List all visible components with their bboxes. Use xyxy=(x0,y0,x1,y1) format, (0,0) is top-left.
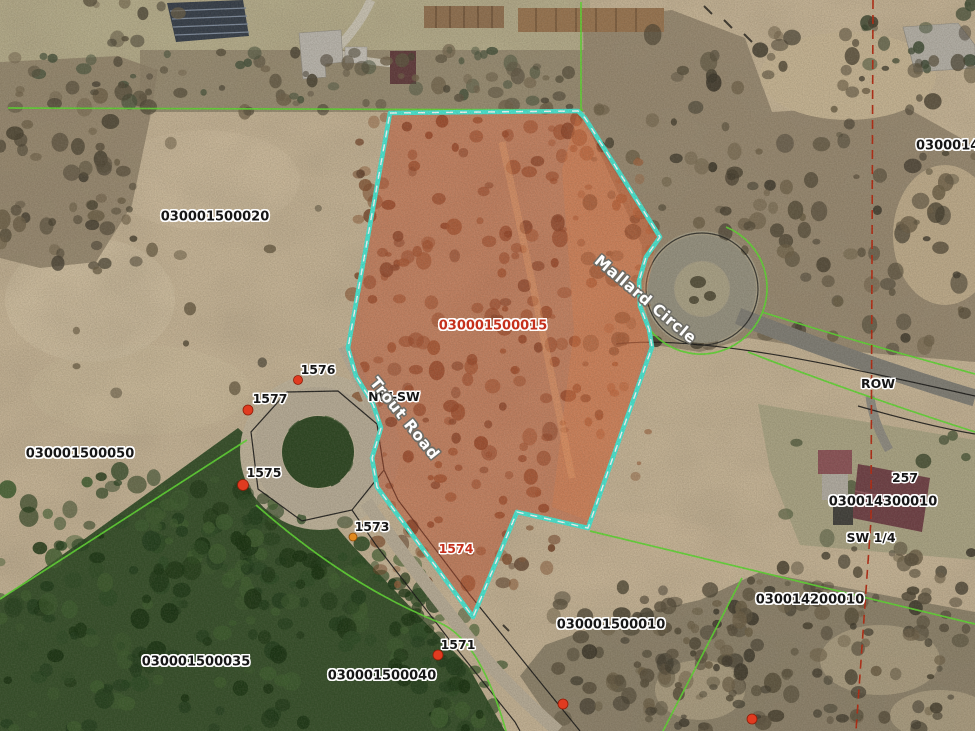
map-viewport[interactable]: 0300015000200300015000150300015000500300… xyxy=(0,0,975,731)
aerial-map[interactable] xyxy=(0,0,975,731)
grain-overlay-light xyxy=(0,0,975,731)
